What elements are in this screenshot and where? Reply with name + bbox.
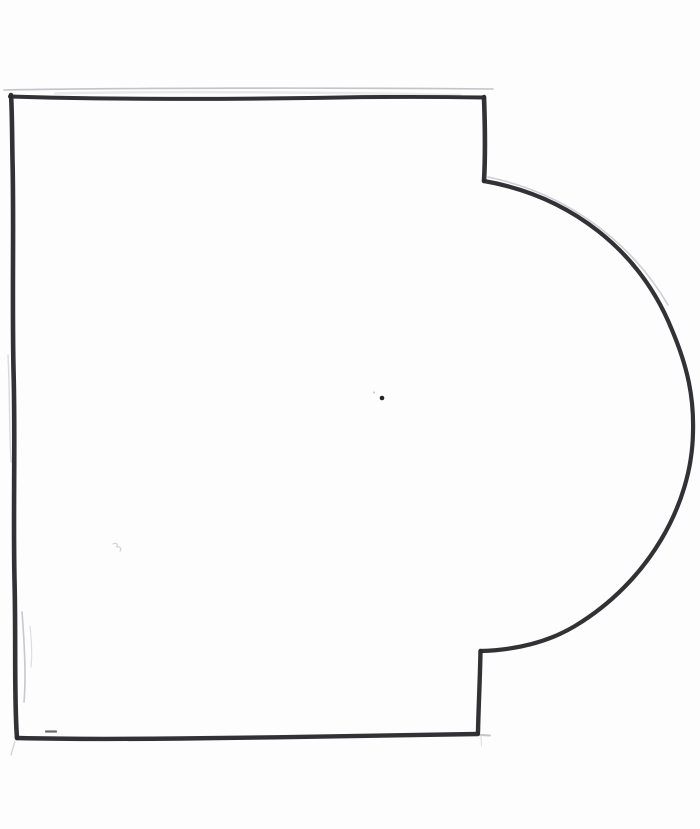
bottom-edge-line	[17, 734, 478, 739]
bottom-right-corner-tail	[481, 736, 482, 746]
bottom-left-corner-tail	[11, 741, 15, 755]
right-notch-bottom-line	[478, 651, 481, 732]
top-pencil-smear	[55, 92, 460, 95]
scanned-paper	[0, 0, 700, 829]
right-notch-top-line	[484, 97, 485, 181]
center-faint-speck	[373, 391, 375, 393]
bulge-upper-pencil-guide	[488, 177, 668, 305]
left-faint-squiggle	[113, 543, 121, 551]
left-lower-pencil-guide-2	[30, 626, 32, 667]
bulge-lower-pencil-guide	[546, 462, 692, 640]
bottom-right-corner-tick	[481, 735, 490, 736]
left-lower-pencil-guide	[22, 612, 25, 702]
bulge-arc-line	[481, 181, 693, 651]
top-edge-line	[10, 97, 484, 99]
center-ink-dot	[380, 396, 385, 401]
sketch-canvas	[0, 0, 700, 829]
left-edge-line	[11, 95, 17, 738]
left-mid-pencil-guide	[8, 355, 11, 462]
top-pencil-guide	[4, 88, 493, 90]
